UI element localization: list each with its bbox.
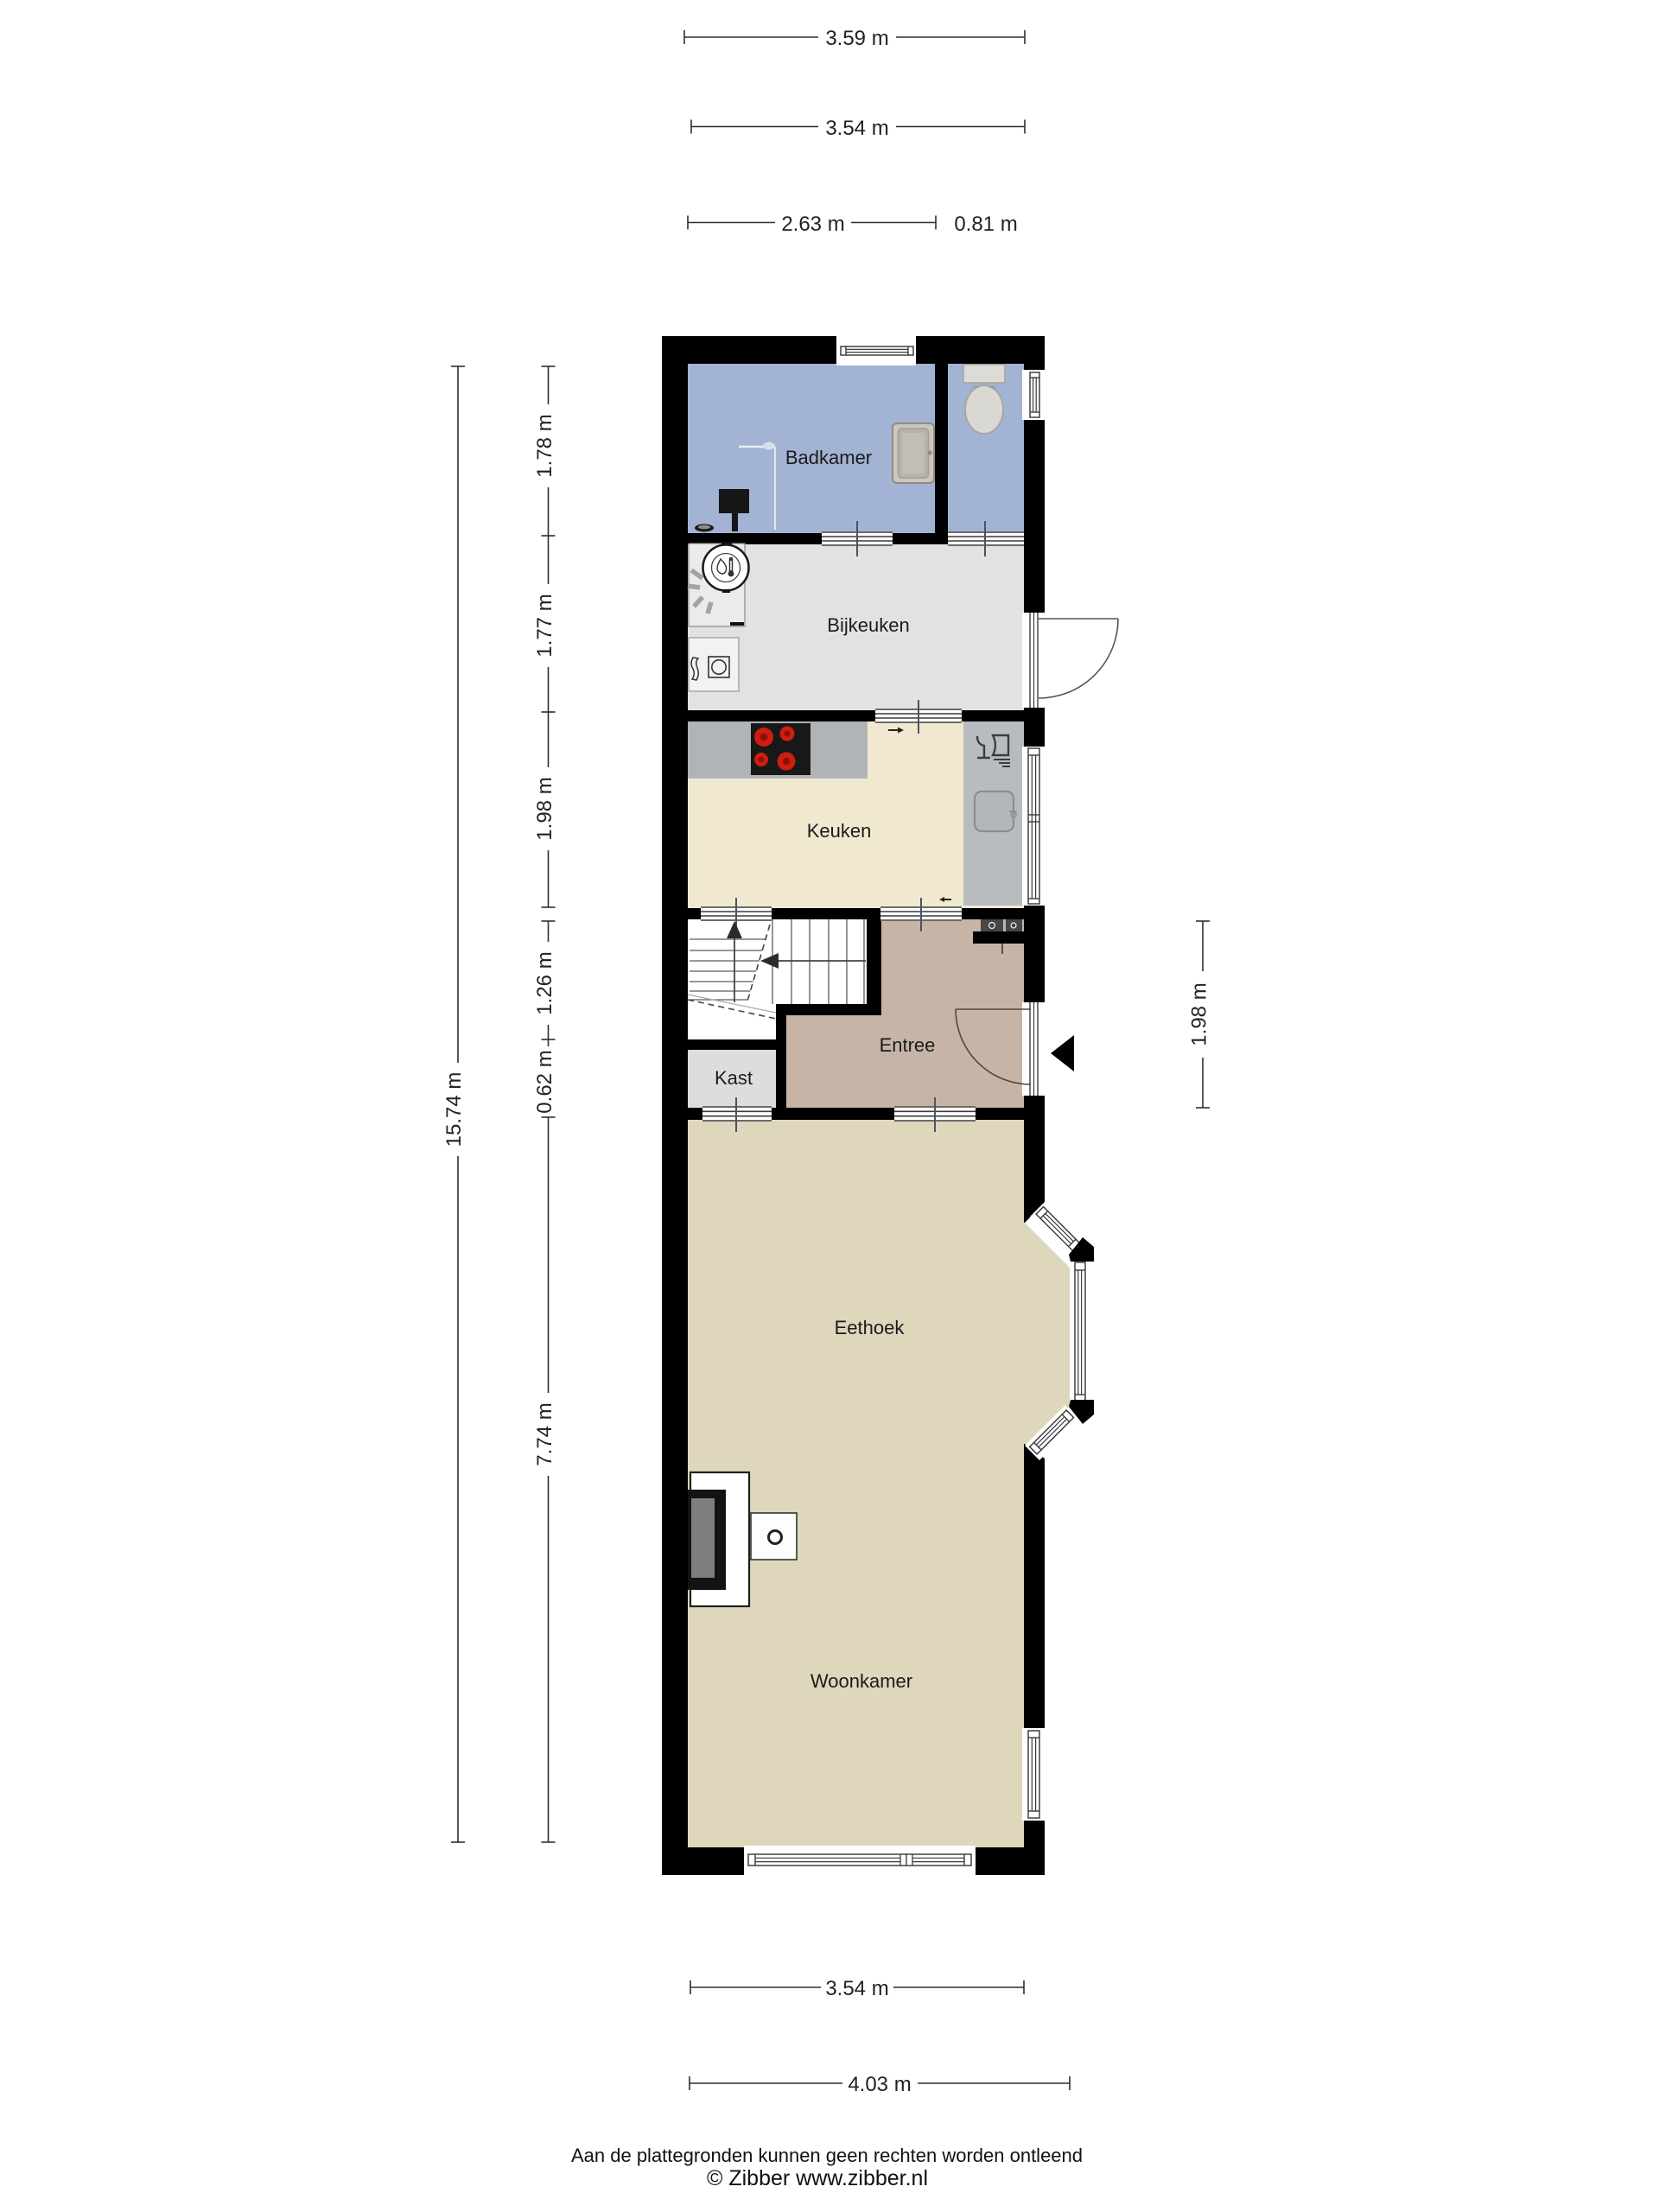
svg-text:4.03 m: 4.03 m xyxy=(848,2073,911,2096)
svg-text:0.81 m: 0.81 m xyxy=(954,213,1017,236)
svg-text:1.26 m: 1.26 m xyxy=(533,951,556,1014)
svg-text:1.98 m: 1.98 m xyxy=(533,777,556,840)
svg-text:Keuken: Keuken xyxy=(807,820,872,842)
svg-text:Eethoek: Eethoek xyxy=(835,1317,906,1338)
svg-text:7.74 m: 7.74 m xyxy=(533,1402,556,1465)
svg-text:Woonkamer: Woonkamer xyxy=(810,1670,912,1692)
svg-text:15.74 m: 15.74 m xyxy=(442,1072,466,1147)
svg-text:Badkamer: Badkamer xyxy=(785,447,872,468)
svg-text:3.59 m: 3.59 m xyxy=(825,27,888,50)
svg-text:Aan de plattegronden kunnen ge: Aan de plattegronden kunnen geen rechten… xyxy=(571,2145,1083,2166)
svg-text:© Zibber www.zibber.nl: © Zibber www.zibber.nl xyxy=(707,2166,928,2190)
svg-text:1.78 m: 1.78 m xyxy=(533,414,556,477)
svg-text:Entree: Entree xyxy=(880,1034,936,1056)
svg-text:1.98 m: 1.98 m xyxy=(1188,982,1211,1046)
svg-text:Kast: Kast xyxy=(715,1067,753,1089)
svg-text:2.63 m: 2.63 m xyxy=(781,213,844,236)
svg-text:1.77 m: 1.77 m xyxy=(533,594,556,657)
svg-text:0.62 m: 0.62 m xyxy=(533,1050,556,1113)
svg-text:Bijkeuken: Bijkeuken xyxy=(827,614,909,636)
svg-text:3.54 m: 3.54 m xyxy=(825,1977,888,2000)
svg-text:3.54 m: 3.54 m xyxy=(825,117,888,140)
